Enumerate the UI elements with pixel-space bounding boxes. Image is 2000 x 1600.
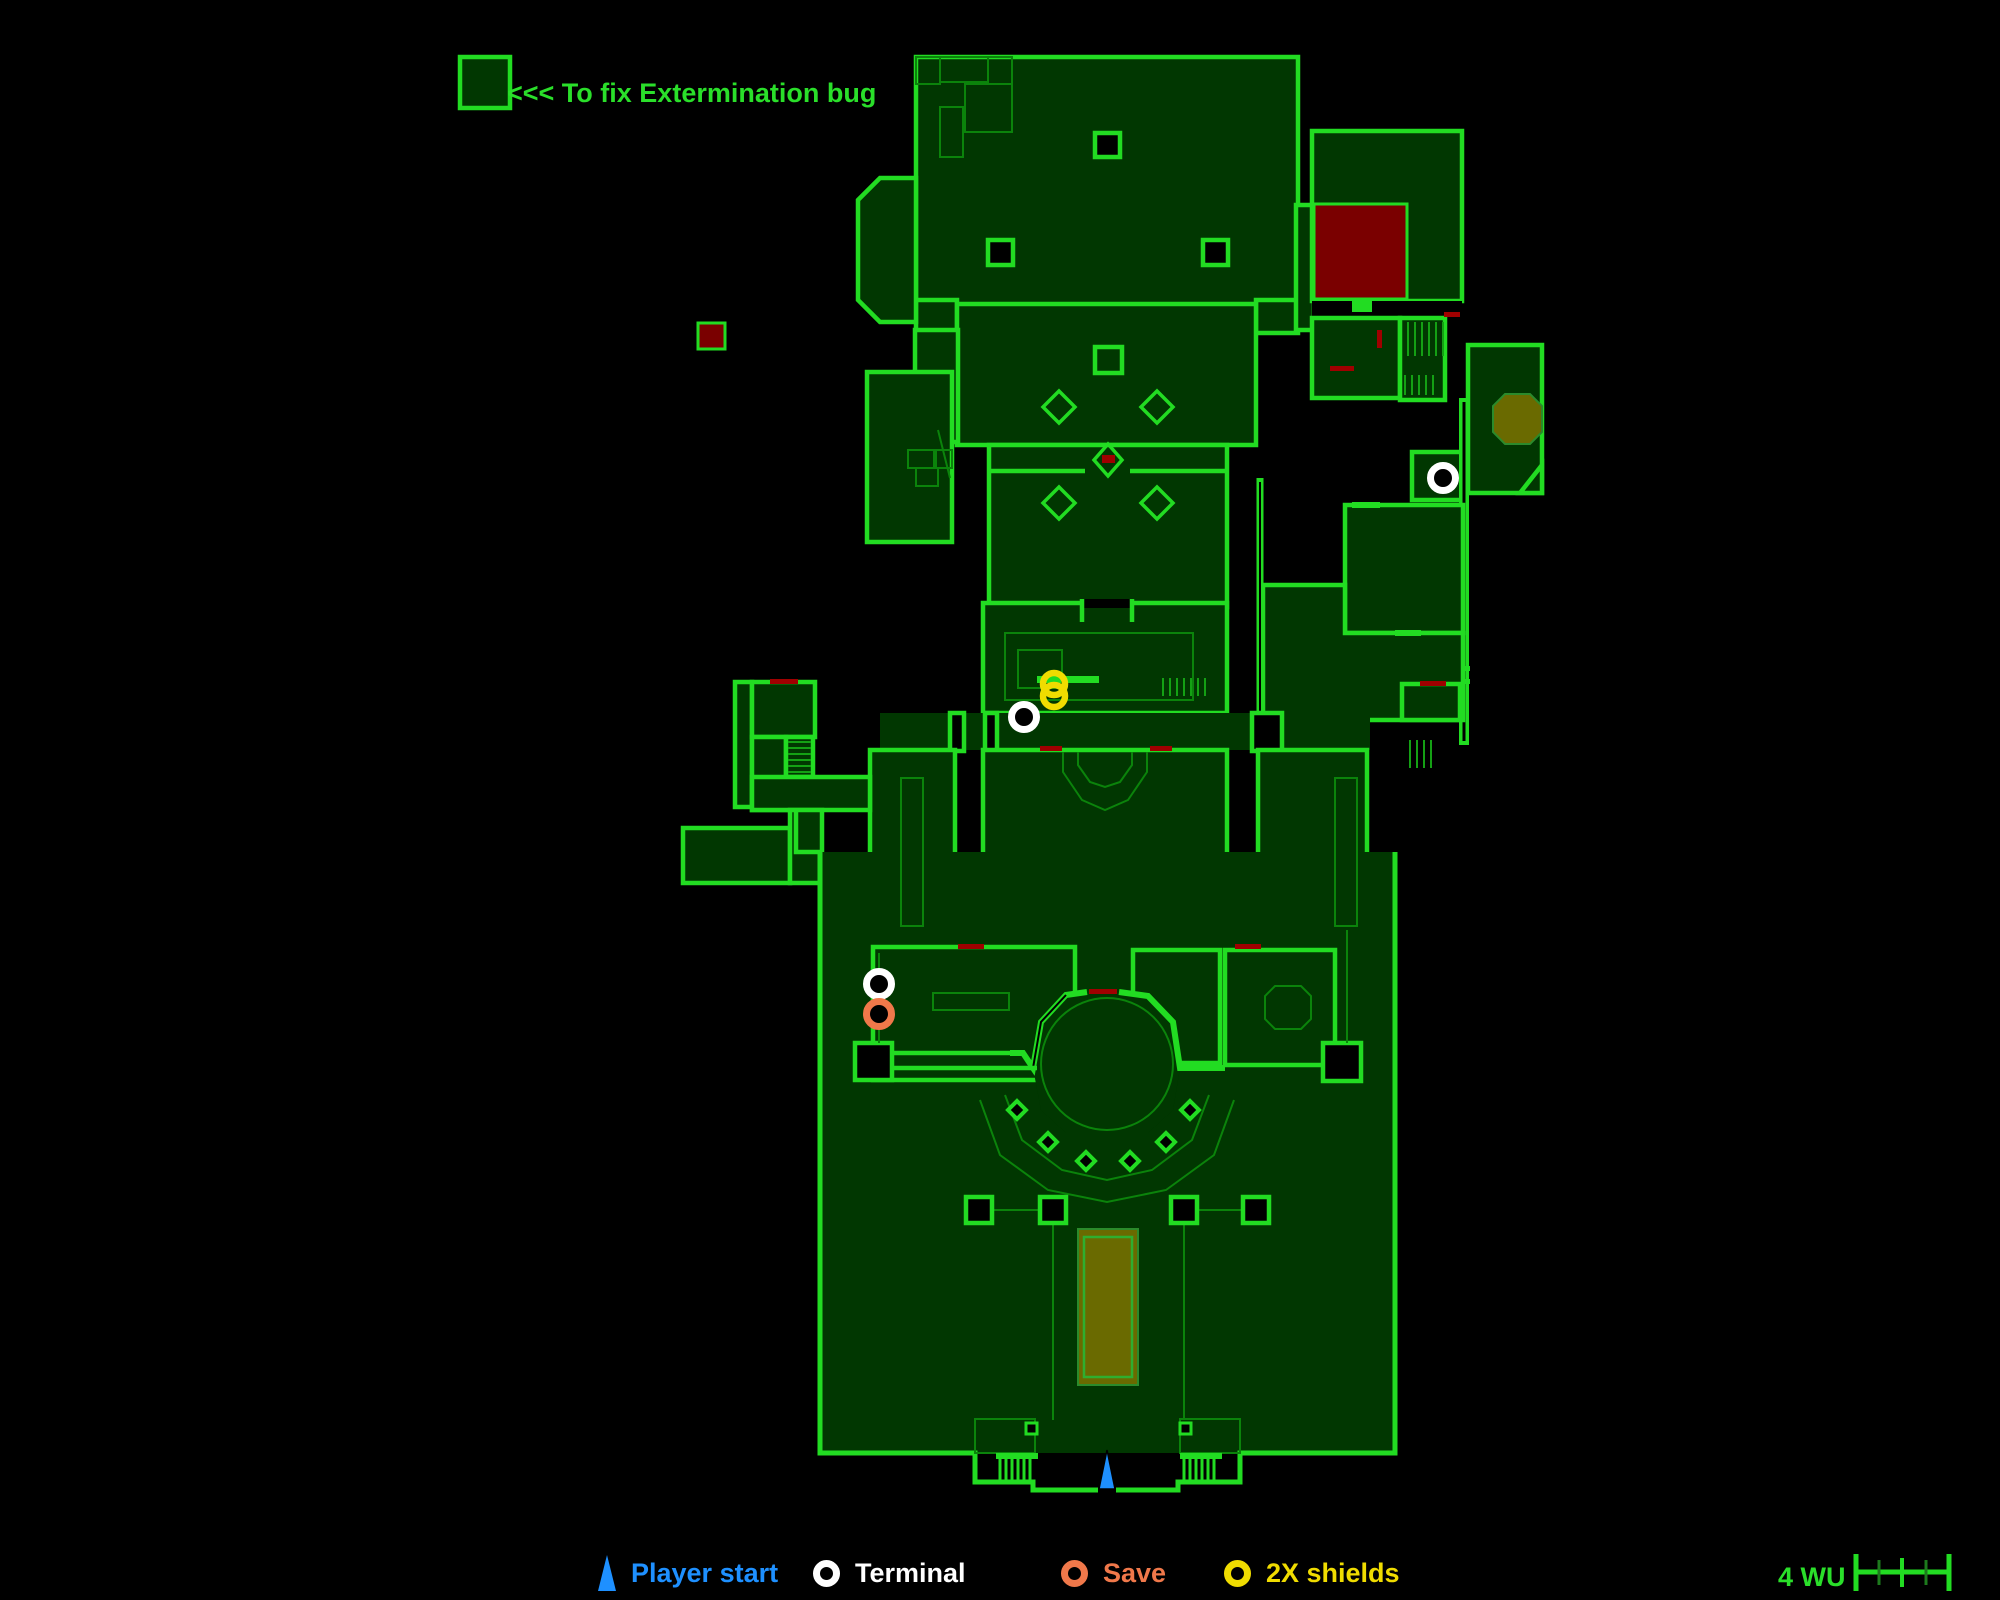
player-start-marker bbox=[1099, 1450, 1115, 1489]
save-marker bbox=[867, 1002, 892, 1027]
annotation-text: <<< To fix Extermination bug bbox=[507, 78, 876, 108]
legend-item-player-start: Player start bbox=[598, 1553, 778, 1593]
legend-item-terminal: Terminal bbox=[813, 1553, 966, 1593]
shields-icon bbox=[1224, 1560, 1251, 1587]
terminal-marker bbox=[1431, 466, 1456, 491]
legend-label-shields: 2X shields bbox=[1266, 1558, 1400, 1589]
terminal-marker bbox=[867, 972, 892, 997]
legend-label-save: Save bbox=[1103, 1558, 1166, 1589]
map-viewport: <<< To fix Extermination bug 4 WU Player… bbox=[0, 0, 2000, 1600]
player-start-icon bbox=[598, 1555, 616, 1591]
legend-item-shields: 2X shields bbox=[1224, 1553, 1400, 1593]
legend-label-player-start: Player start bbox=[631, 1558, 778, 1589]
legend-label-terminal: Terminal bbox=[855, 1558, 966, 1589]
terminal-marker bbox=[1012, 705, 1037, 730]
annotation-square bbox=[460, 57, 510, 108]
legend-item-save: Save bbox=[1061, 1553, 1166, 1593]
scale-indicator: 4 WU bbox=[1778, 1554, 1950, 1592]
annotation: <<< To fix Extermination bug bbox=[460, 57, 876, 108]
save-icon bbox=[1061, 1560, 1088, 1587]
terminal-icon bbox=[813, 1560, 840, 1587]
level-map: <<< To fix Extermination bug 4 WU bbox=[0, 0, 2000, 1600]
scale-label: 4 WU bbox=[1778, 1562, 1846, 1592]
